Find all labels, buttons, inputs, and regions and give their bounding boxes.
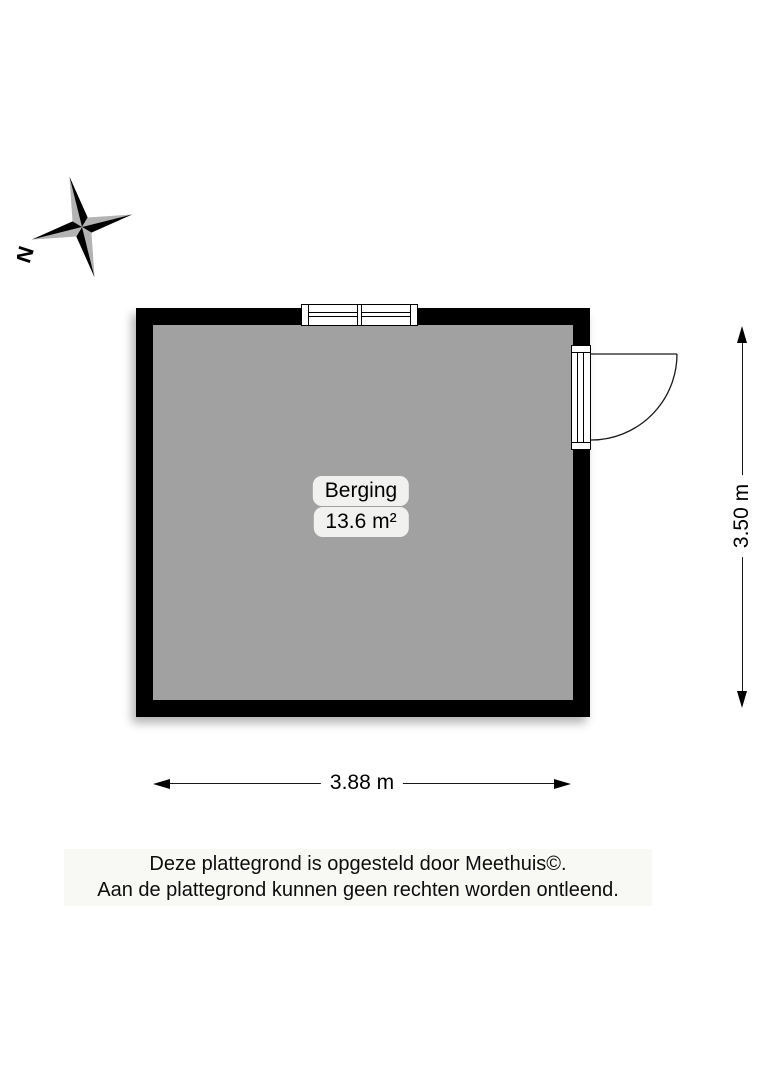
arrow-up-icon [737, 326, 747, 343]
window-end-cap [410, 305, 417, 325]
compass-star [19, 164, 145, 290]
disclaimer-footer: Deze plattegrond is opgesteld door Meeth… [64, 849, 652, 906]
compass-north-icon: N [17, 162, 147, 292]
room-name-label: Berging [313, 476, 409, 506]
width-dimension-label: 3.88 m [321, 771, 403, 795]
arrow-right-icon [554, 779, 571, 789]
window-icon [301, 304, 418, 326]
arrow-down-icon [737, 691, 747, 708]
room-area-label: 13.6 m² [313, 507, 408, 537]
disclaimer-line-1: Deze plattegrond is opgesteld door Meeth… [64, 851, 652, 877]
window-pane [309, 305, 357, 325]
door-swing-icon [586, 346, 692, 452]
window-pane [362, 305, 410, 325]
arrow-left-icon [153, 779, 170, 789]
window-end-cap [302, 305, 309, 325]
compass-north-label: N [17, 243, 39, 266]
height-dimension-label: 3.50 m [730, 475, 754, 557]
floorplan-canvas: N Berging 13.6 m² 3.88 m 3.50 m Deze pla… [0, 0, 764, 1080]
room-label-group: Berging 13.6 m² [313, 476, 409, 537]
disclaimer-line-2: Aan de plattegrond kunnen geen rechten w… [64, 877, 652, 903]
